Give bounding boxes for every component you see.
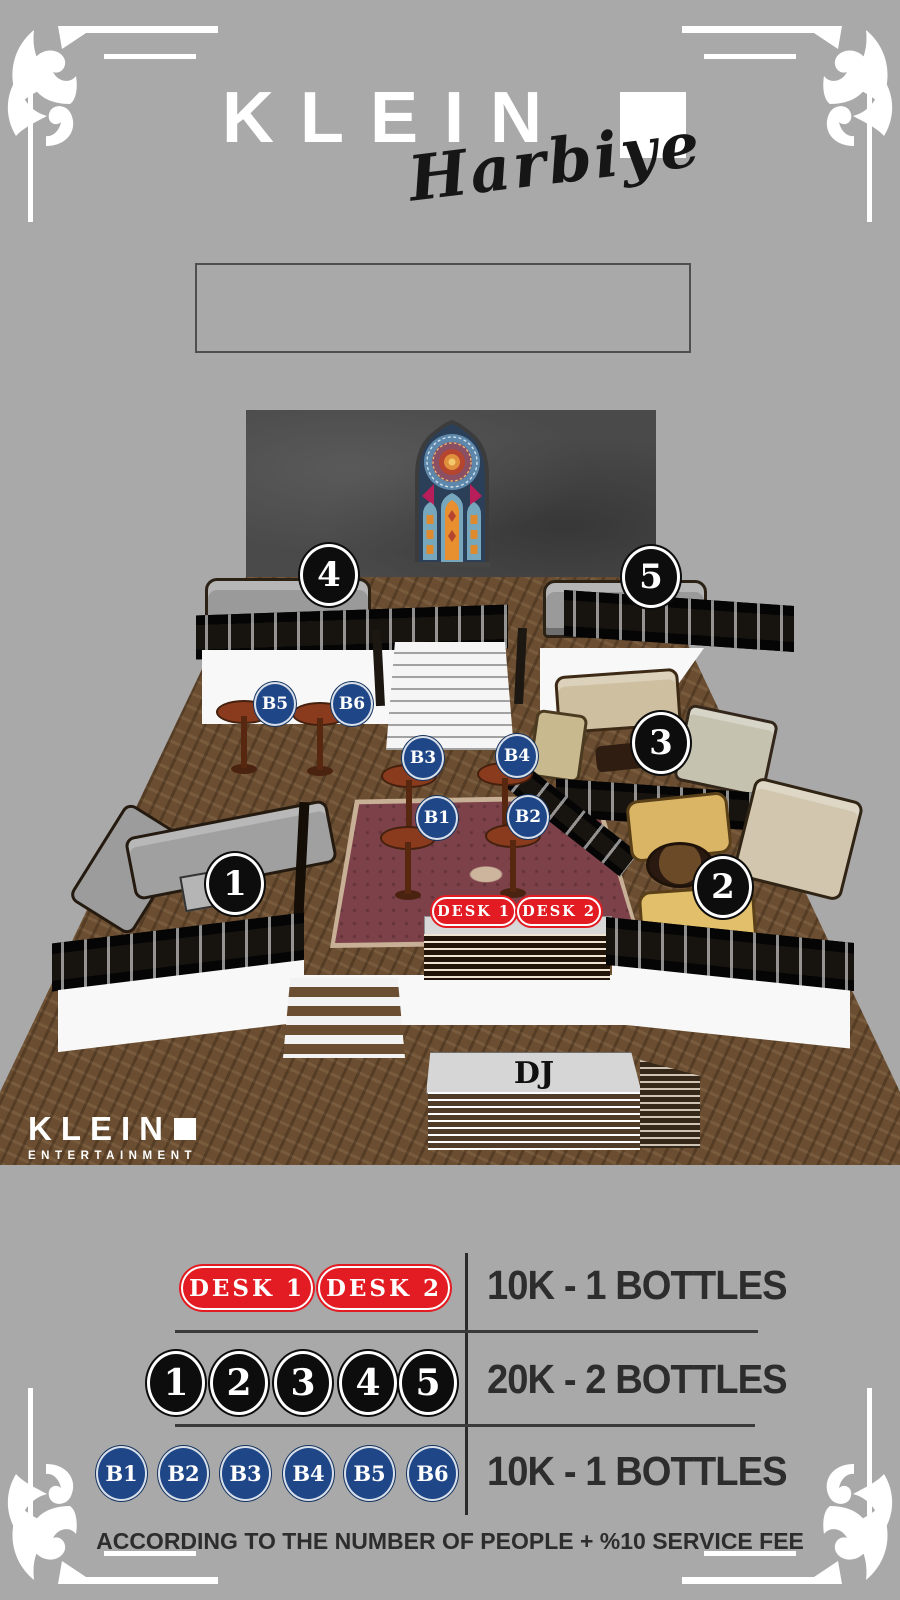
legend-table-1[interactable]: 1: [147, 1351, 205, 1415]
watermark-subtitle: ENTERTAINMENT: [28, 1150, 197, 1162]
event-info-box: [195, 263, 691, 353]
map-bottle-b2[interactable]: B2: [507, 795, 549, 839]
legend-bottle-b6[interactable]: B6: [407, 1446, 458, 1501]
legend-line-2: [175, 1424, 755, 1427]
map-table-2[interactable]: 2: [694, 856, 752, 918]
legend-bottle-b4[interactable]: B4: [283, 1446, 334, 1501]
legend-bottle-b2[interactable]: B2: [158, 1446, 209, 1501]
watermark-square: [174, 1118, 196, 1140]
legend-line-1: [175, 1330, 758, 1333]
legend-table-4[interactable]: 4: [339, 1351, 397, 1415]
map-table-5[interactable]: 5: [622, 546, 680, 608]
staircase-lower: [283, 978, 405, 1058]
map-bottle-b1[interactable]: B1: [416, 796, 458, 840]
map-bottle-b3[interactable]: B3: [402, 736, 444, 780]
legend-desk-2[interactable]: DESK 2: [318, 1266, 450, 1310]
flyer-page: KLEIN Harbiye: [0, 0, 900, 1600]
legend-price-tables: 20K - 2 BOTTLES: [487, 1356, 787, 1403]
corner-ornament-top-left: [6, 12, 236, 222]
map-bottle-b5[interactable]: B5: [254, 682, 296, 726]
dj-label: DJ: [514, 1056, 554, 1091]
map-table-1[interactable]: 1: [206, 853, 264, 915]
dj-booth-front: [428, 1092, 640, 1150]
staircase-upper: [386, 642, 514, 750]
map-table-3[interactable]: 3: [632, 712, 690, 774]
legend-bottle-b5[interactable]: B5: [344, 1446, 395, 1501]
map-bottle-b4[interactable]: B4: [496, 734, 538, 778]
dj-booth-top: DJ: [426, 1052, 642, 1094]
desk-counter-front: [424, 934, 610, 980]
map-table-4[interactable]: 4: [300, 544, 358, 606]
legend-table-2[interactable]: 2: [210, 1351, 268, 1415]
armchair-table-3: [528, 709, 589, 784]
watermark: KLEIN ENTERTAINMENT: [28, 1112, 197, 1162]
map-desk-1[interactable]: DESK 1: [432, 897, 516, 926]
legend-desk-1[interactable]: DESK 1: [181, 1266, 313, 1310]
legend-price-bottles: 10K - 1 BOTTLES: [487, 1448, 787, 1495]
legend-bottle-b3[interactable]: B3: [220, 1446, 271, 1501]
service-fee-note: ACCORDING TO THE NUMBER OF PEOPLE + %10 …: [0, 1528, 900, 1555]
legend-divider: [465, 1253, 468, 1515]
watermark-brand: KLEIN: [28, 1112, 197, 1145]
legend-table-3[interactable]: 3: [274, 1351, 332, 1415]
stained-glass-window: [410, 418, 494, 570]
legend-table-5[interactable]: 5: [399, 1351, 457, 1415]
legend-bottle-b1[interactable]: B1: [96, 1446, 147, 1501]
map-desk-2[interactable]: DESK 2: [517, 897, 601, 926]
map-bottle-b6[interactable]: B6: [331, 682, 373, 726]
legend-price-desks: 10K - 1 BOTTLES: [487, 1262, 787, 1309]
